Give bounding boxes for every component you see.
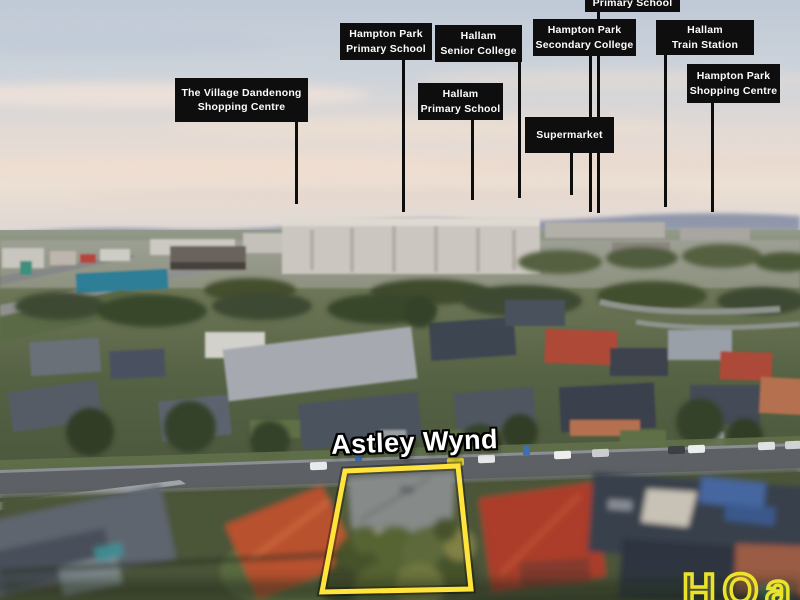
pointer-line-hallam-senior-college [518,62,521,198]
callout-text-line: Senior College [440,44,516,58]
callout-hallam-train-station: HallamTrain Station [656,20,754,55]
callout-top-partial-primary-school: Primary School [585,0,680,12]
callout-text-line: Hallam [461,29,497,43]
watermark-logo: HOa [682,563,798,600]
callout-supermarket: Supermarket [525,117,614,153]
pointer-line-hallam-primary-school [471,120,474,200]
boundary-outline [322,466,471,592]
callout-hampton-park-shopping-centre: Hampton ParkShopping Centre [687,64,780,103]
callout-text-line: Hampton Park [349,27,423,41]
callout-text-line: Hallam [443,87,479,101]
callout-hampton-park-primary-school: Hampton ParkPrimary School [340,23,432,60]
callout-text-line: Train Station [672,38,738,52]
callout-text-line: Primary School [421,102,501,116]
callout-text-line: Shopping Centre [690,84,778,98]
callout-text-line: Primary School [593,0,673,10]
callout-village-dandenong-shopping-centre: The Village DandenongShopping Centre [175,78,308,122]
pointer-line-hallam-train-station [664,55,667,207]
callout-hallam-senior-college: HallamSenior College [435,25,522,62]
property-boundary [0,0,800,600]
callout-text-line: Primary School [346,42,426,56]
street-name-label: Astley Wynd [331,424,499,461]
annotated-aerial-photo: The Village DandenongShopping CentreHamp… [0,0,800,600]
pointer-line-supermarket [570,153,573,195]
callout-text-line: Shopping Centre [198,100,286,114]
callout-text-line: Hampton Park [697,69,771,83]
callout-text-line: Hallam [687,23,723,37]
callout-text-line: Hampton Park [548,23,622,37]
callout-text-line: The Village Dandenong [181,86,301,100]
callout-hallam-primary-school: HallamPrimary School [418,83,503,120]
pointer-line-hampton-park-primary-school [402,60,405,212]
pointer-line-hampton-park-shopping-centre [711,103,714,212]
pointer-line-village-dandenong-shopping-centre [295,122,298,204]
callout-text-line: Supermarket [536,128,602,142]
callout-hampton-park-secondary-college: Hampton ParkSecondary College [533,19,636,56]
callout-text-line: Secondary College [536,38,634,52]
